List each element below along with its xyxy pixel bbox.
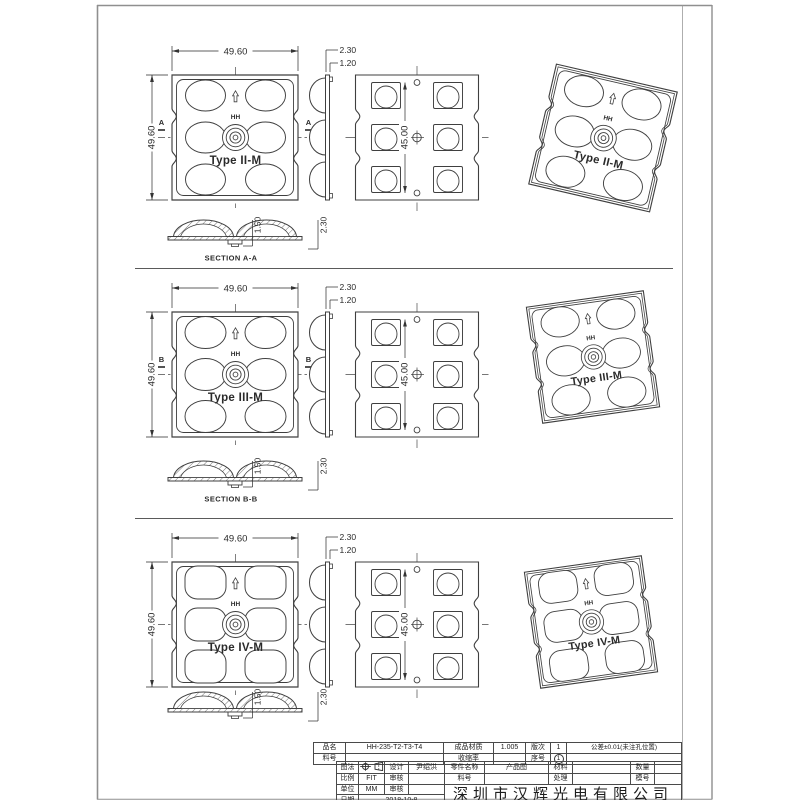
material-value: 1.005 bbox=[494, 743, 526, 754]
side-view: 2.301.20 bbox=[310, 45, 357, 200]
drawing-row-2: HHType III-M49.6049.60BB2.301.2045.00HHT… bbox=[146, 282, 660, 504]
projection-symbols bbox=[359, 762, 385, 774]
side-view: 2.301.20 bbox=[310, 282, 357, 437]
tb-empty-cell bbox=[655, 762, 682, 774]
tolerance-note: 公差±0.01(未注孔位置) bbox=[567, 743, 682, 754]
part-name-value: 产品图 bbox=[485, 762, 549, 774]
iso-plate: HHType III-M bbox=[526, 291, 659, 423]
dim-width: 49.60 bbox=[224, 284, 248, 295]
section-letter: A bbox=[306, 118, 312, 127]
front-view: HHType III-M49.6049.60BB bbox=[146, 283, 320, 446]
logo-text: HH bbox=[231, 601, 241, 608]
tb-empty-cell bbox=[573, 762, 631, 774]
iso-view: HHType III-M bbox=[526, 291, 659, 423]
side-view: 2.301.20 bbox=[310, 532, 357, 687]
section-view: 1.502.30SECTION B-B bbox=[168, 457, 329, 503]
scale-value: FIT bbox=[359, 774, 385, 785]
dim-base-thickness: 1.20 bbox=[340, 295, 357, 305]
plate-outline: HHType II-M bbox=[172, 75, 298, 200]
company-name: 深圳市汉辉光电有限公司 bbox=[445, 784, 682, 800]
logo-text: HH bbox=[586, 334, 596, 342]
dim-pitch: 45.00 bbox=[400, 613, 411, 637]
drawing-views: HHType II-M49.6049.60AA2.301.2045.00HHTy… bbox=[146, 45, 677, 721]
plate-outline: HHType III-M bbox=[172, 312, 298, 437]
section-letter: B bbox=[306, 355, 312, 364]
cone-projection-icon bbox=[374, 762, 384, 771]
tb-empty-cell bbox=[485, 774, 549, 785]
dim-total-height: 2.30 bbox=[319, 216, 329, 233]
front-view: HHType II-M49.6049.60AA bbox=[146, 46, 320, 209]
tb-label-part-name: 零件名称 bbox=[445, 762, 485, 774]
tb-label-quantity: 数量 bbox=[631, 762, 655, 774]
dim-lens-height: 1.50 bbox=[253, 688, 263, 705]
tb-empty-cell bbox=[573, 774, 631, 785]
iso-view: HHType II-M bbox=[529, 64, 677, 212]
designer-name: 尹绍洪 bbox=[409, 762, 445, 774]
dim-total-height: 2.30 bbox=[319, 457, 329, 474]
tb-label-mold: 模号 bbox=[631, 774, 655, 785]
dim-height: 49.60 bbox=[147, 613, 158, 637]
section-title: SECTION B-B bbox=[204, 495, 257, 504]
dim-base-thickness: 1.20 bbox=[340, 545, 357, 555]
back-view: 45.00 bbox=[346, 66, 489, 211]
plate-outline: HHType IV-M bbox=[172, 562, 298, 687]
dim-thickness: 2.30 bbox=[340, 532, 357, 542]
revision-value: 1 bbox=[551, 743, 567, 754]
target-projection-icon bbox=[360, 762, 371, 771]
tb-label-date: 日期 bbox=[337, 795, 359, 800]
title-block-bottom: 图法 设计 尹绍洪 零件名称 产品图 材料 bbox=[336, 761, 682, 800]
section-view: 1.502.30 bbox=[168, 688, 329, 721]
tb-label-material: 成品材质 bbox=[444, 743, 494, 754]
type-label: Type III-M bbox=[208, 392, 263, 404]
type-label: Type II-M bbox=[210, 155, 262, 167]
back-view: 45.00 bbox=[346, 303, 489, 448]
section-view: 1.502.30SECTION A-A bbox=[168, 216, 329, 262]
drawing-row-3: HHType IV-M49.6049.602.301.2045.00HHType… bbox=[146, 532, 658, 721]
engineering-drawing-page: HHType II-M49.6049.60AA2.301.2045.00HHTy… bbox=[0, 0, 800, 800]
tb-label-pinming: 品名 bbox=[314, 743, 346, 754]
tb-empty-cell bbox=[409, 784, 445, 795]
dim-lens-height: 1.50 bbox=[253, 216, 263, 233]
tb-empty-cell bbox=[655, 774, 682, 785]
back-view: 45.00 bbox=[346, 553, 489, 698]
section-title: SECTION A-A bbox=[205, 254, 258, 263]
section-letter: B bbox=[159, 355, 165, 364]
dim-lens-height: 1.50 bbox=[253, 457, 263, 474]
dim-thickness: 2.30 bbox=[340, 45, 357, 55]
dim-thickness: 2.30 bbox=[340, 282, 357, 292]
drawing-row-1: HHType II-M49.6049.60AA2.301.2045.00HHTy… bbox=[146, 45, 677, 263]
logo-text: HH bbox=[231, 351, 241, 358]
tb-label-liaohao2: 料号 bbox=[445, 774, 485, 785]
dim-width: 49.60 bbox=[224, 534, 248, 545]
logo-text: HH bbox=[231, 114, 241, 121]
tb-label-scale: 比例 bbox=[337, 774, 359, 785]
part-number-value: HH-235-T2-T3-T4 bbox=[346, 743, 444, 754]
dim-base-thickness: 1.20 bbox=[340, 58, 357, 68]
dim-width: 49.60 bbox=[224, 47, 248, 58]
iso-plate: HHType II-M bbox=[529, 64, 677, 212]
tb-label-treatment: 处理 bbox=[549, 774, 573, 785]
dim-pitch: 45.00 bbox=[400, 363, 411, 387]
tb-label-revision: 版次 bbox=[526, 743, 551, 754]
unit-value: MM bbox=[359, 784, 385, 795]
iso-view: HHType IV-M bbox=[524, 556, 657, 688]
type-label: Type IV-M bbox=[208, 642, 264, 654]
tb-label-design: 设计 bbox=[385, 762, 409, 774]
tb-label-material2: 材料 bbox=[549, 762, 573, 774]
tb-label-check: 审核 bbox=[385, 774, 409, 785]
dim-total-height: 2.30 bbox=[319, 688, 329, 705]
dim-height: 49.60 bbox=[147, 126, 158, 150]
tb-empty-cell bbox=[409, 774, 445, 785]
logo-text: HH bbox=[584, 599, 594, 607]
front-view: HHType IV-M49.6049.60 bbox=[146, 533, 320, 696]
dim-height: 49.60 bbox=[147, 363, 158, 387]
dim-pitch: 45.00 bbox=[400, 126, 411, 150]
tb-label-check2: 审核 bbox=[385, 784, 409, 795]
drawing-canvas: HHType II-M49.6049.60AA2.301.2045.00HHTy… bbox=[0, 0, 800, 800]
tb-label-unit: 单位 bbox=[337, 784, 359, 795]
section-letter: A bbox=[159, 118, 165, 127]
date-value: 2018-10-8 bbox=[359, 795, 445, 800]
tb-label-projection: 图法 bbox=[337, 762, 359, 774]
iso-plate: HHType IV-M bbox=[524, 556, 657, 688]
